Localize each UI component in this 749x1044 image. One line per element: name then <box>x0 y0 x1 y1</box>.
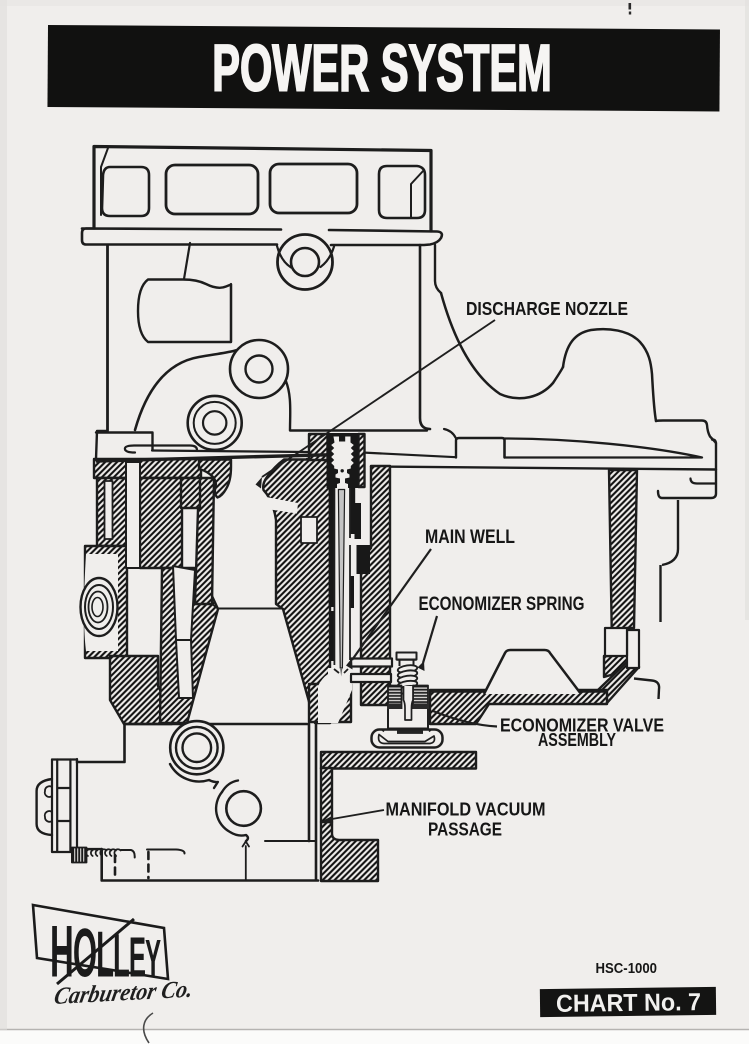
svg-text:PASSAGE: PASSAGE <box>428 819 502 840</box>
svg-text:HSC-1000: HSC-1000 <box>596 961 658 977</box>
svg-text:DISCHARGE NOZZLE: DISCHARGE NOZZLE <box>466 298 628 319</box>
svg-text:CHART No. 7: CHART No. 7 <box>556 989 701 1018</box>
svg-text:POWER SYSTEM: POWER SYSTEM <box>212 31 552 105</box>
svg-text:MANIFOLD VACUUM: MANIFOLD VACUUM <box>386 799 546 820</box>
svg-text:ASSEMBLY: ASSEMBLY <box>538 729 617 750</box>
svg-text:ECONOMIZER SPRING: ECONOMIZER SPRING <box>419 593 585 615</box>
svg-text:MAIN WELL: MAIN WELL <box>425 526 515 548</box>
